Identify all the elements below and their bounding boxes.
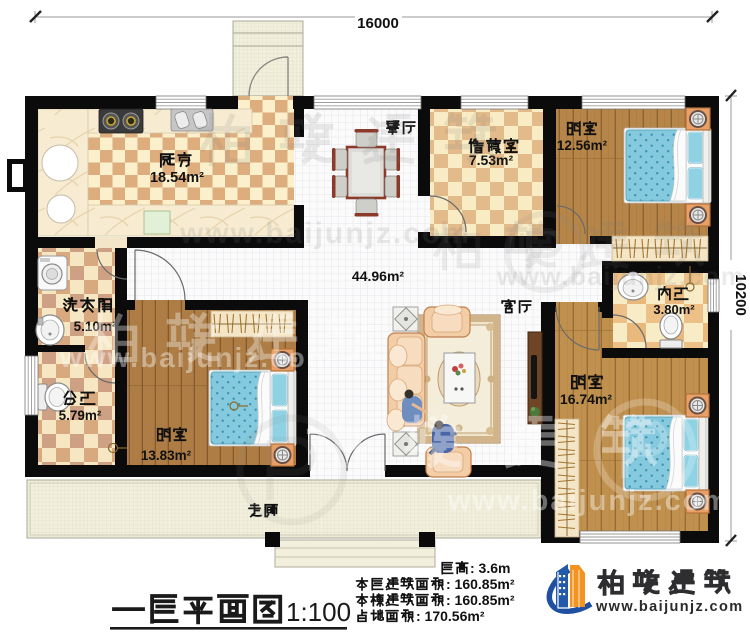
svg-text:5.79m²: 5.79m² <box>59 408 102 423</box>
svg-text:18.54m²: 18.54m² <box>150 170 204 186</box>
svg-text:www.baijunjz.com: www.baijunjz.com <box>595 599 744 615</box>
svg-text:1:100: 1:100 <box>286 597 351 627</box>
svg-text:12.56m²: 12.56m² <box>557 138 608 153</box>
svg-text:: 170.56m²: : 170.56m² <box>416 608 485 624</box>
svg-text:: 3.6m: : 3.6m <box>470 560 510 576</box>
svg-text:16.74m²: 16.74m² <box>560 391 612 407</box>
svg-text:www.baijunjz.com: www.baijunjz.com <box>447 485 730 517</box>
svg-text:13.83m²: 13.83m² <box>141 448 192 463</box>
svg-text:: 160.85m²: : 160.85m² <box>446 592 515 608</box>
svg-text:16000: 16000 <box>357 15 399 32</box>
svg-text:www.baijunjz.com: www.baijunjz.com <box>179 217 471 250</box>
svg-text:: 160.85m²: : 160.85m² <box>446 576 515 592</box>
svg-text:www.baijunjz.com: www.baijunjz.com <box>59 342 334 373</box>
svg-text:3.80m²: 3.80m² <box>653 302 695 317</box>
svg-text:44.96m²: 44.96m² <box>352 268 404 284</box>
